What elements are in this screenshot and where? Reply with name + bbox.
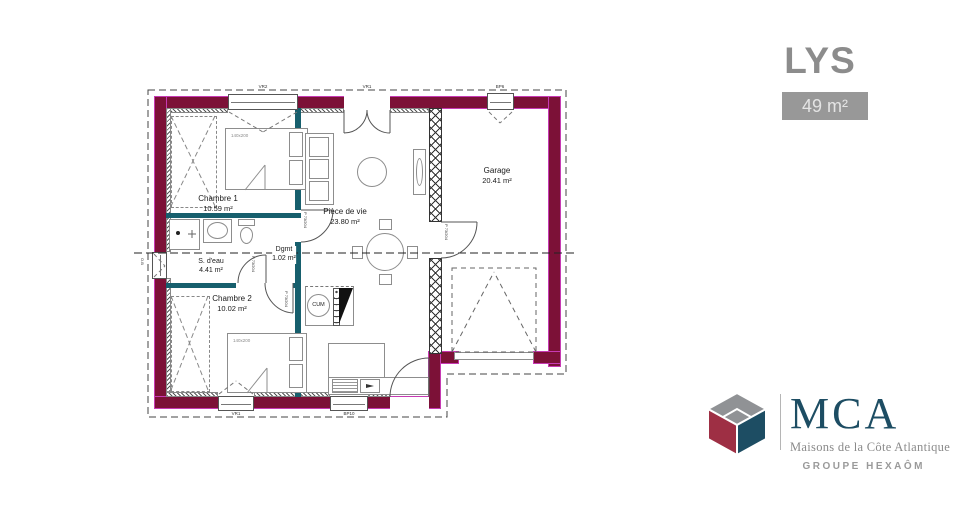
room-label-sdeau: S. d'eau 4.41 m² [198,258,223,276]
door-code: P 73/204 [444,224,449,240]
room-label-garage: Garage 20.41 m² [482,166,512,185]
window-code: VR1 [363,84,372,89]
brand-divider [780,394,781,450]
bed-fold [245,165,267,393]
floor-plan-sheet: 140x200 CUM [0,0,960,532]
plan-title: LYS [770,40,870,82]
brand-name: MCA [790,392,899,436]
area-badge: 49 m² [782,92,868,120]
door-code: P 73/204 [284,291,289,307]
garage-door-swing [452,268,536,352]
floor-plan: 140x200 CUM [0,0,640,532]
room-label-chambre1: Chambre 1 10.59 m² [198,194,238,213]
brand-tagline: Maisons de la Côte Atlantique [790,440,950,455]
window-code: BP6 [496,84,505,89]
room-label-chambre2: Chambre 2 10.02 m² [212,294,252,313]
mca-cube-logo [703,390,771,458]
window-code: VR2 [259,84,268,89]
room-label-piece-de-vie: Pièce de vie 23.80 m² [323,207,367,226]
window-code: BP10 [343,411,354,416]
appliance-arrow [366,384,374,388]
french-door-swing [344,110,390,133]
entry-door-swing [390,358,429,397]
window-code: VR1 [232,411,241,416]
brand-group: GROUPE HEXAÔM [760,461,925,472]
room-label-dgmt: Dgmt 1.02 m² [272,246,296,264]
door-code: P 73/204 [303,212,308,228]
window-code: O.B [140,258,145,265]
door-code: P 73/204 [251,256,256,272]
shower-cross [188,230,196,238]
